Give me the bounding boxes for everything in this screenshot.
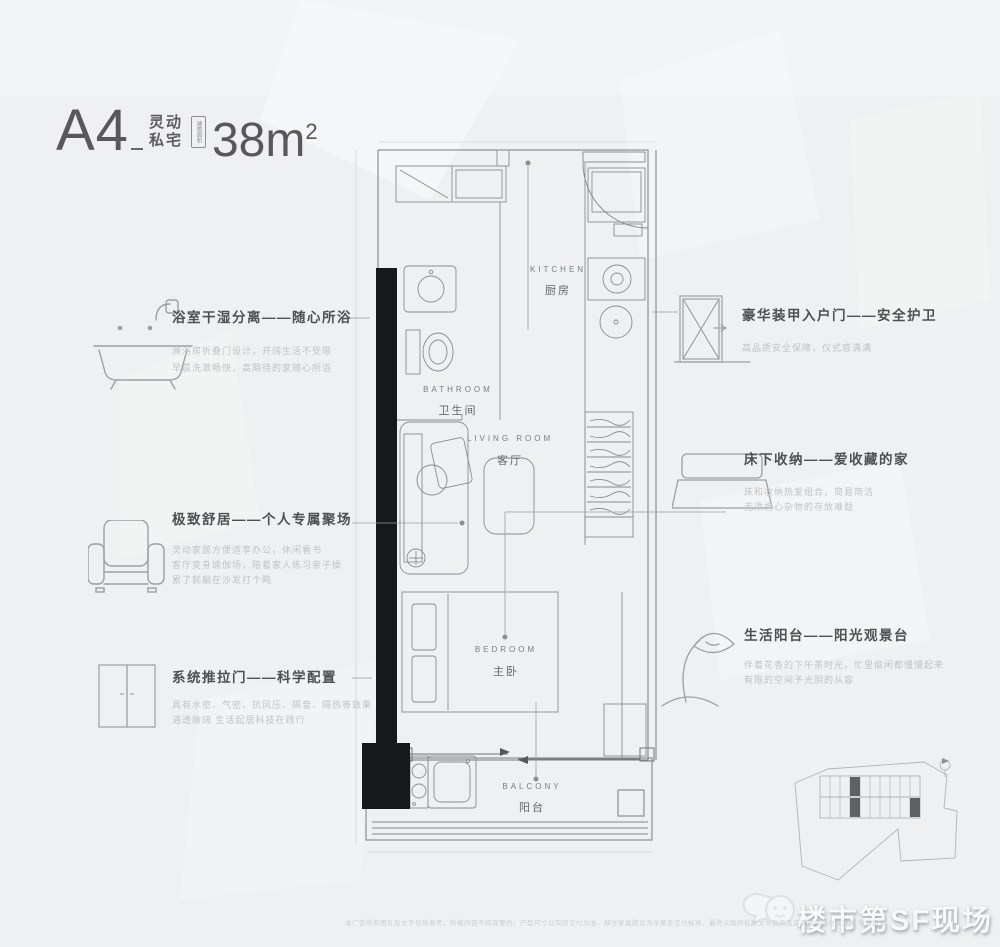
annotation-entrydoor-desc-1: 高品质安全保障，仪式感满满 [742, 341, 872, 354]
disclaimer-text: 本广告所有图片及文字仅供参考，所载内容不构成要约，户型尺寸以实际交付为准，部分家… [345, 917, 965, 927]
sliding-door-icon [98, 664, 158, 730]
tagline-line2: 私宅 [149, 132, 183, 149]
plan-title-block: A4 灵动 私宅 建筑面积 38m2 [56, 100, 318, 170]
annotation-entrydoor-title: 豪华装甲入户门——安全护卫 [742, 304, 937, 324]
balcony-label-en: BALCONY [502, 782, 561, 791]
annotation-living-desc-2: 客厅变身瑜伽场，陪着家人练习亲子操 [172, 558, 342, 571]
bathroom-label-en: BATHROOM [423, 385, 493, 394]
annotation-bathroom-desc-2: 早晨洗漱畅快，高期待的家随心所浴 [172, 361, 332, 374]
annotation-bedstorage-desc-1: 床和收纳热爱组合，简易简洁 [744, 485, 874, 498]
balcony-label-zh: 阳台 [519, 800, 545, 814]
unit-area: 38m2 [212, 102, 318, 171]
unit-tagline: 灵动 私宅 [149, 114, 183, 150]
area-superscript: 2 [305, 119, 317, 144]
tagline-line1: 灵动 [149, 114, 183, 131]
floor-lamp-icon [658, 618, 746, 712]
annotation-living-desc-3: 累了就躺在沙发打个盹 [172, 573, 272, 586]
bedroom-label-en: BEDROOM [475, 645, 537, 654]
floorplan-page: A4 灵动 私宅 建筑面积 38m2 [0, 0, 1000, 947]
area-badge: 建筑面积 [191, 116, 206, 148]
annotation-slidingdoor-title: 系统推拉门——科学配置 [172, 666, 337, 686]
entry-door-icon [674, 294, 752, 368]
unit-name: A4 [56, 100, 129, 162]
annotation-balcony-desc-2: 有限的空间予光阴的从容 [744, 673, 854, 686]
annotation-balcony-title: 生活阳台——阳光观景台 [744, 624, 909, 644]
annotation-bathroom-desc-1: 淋浴房折叠门设计，开阔生活不受限 [172, 344, 332, 357]
annotation-slidingdoor-desc-2: 通透敞阔 生活起居科技在践行 [172, 713, 306, 726]
annotation-living-title: 极致舒居——个人专属聚场 [172, 508, 352, 528]
north-arrow-icon [940, 758, 950, 777]
annotation-balcony-desc-1: 伴着花香的下午茶时光，忙里偷闲都慢慢起来 [744, 658, 944, 671]
annotation-bedstorage-title: 床下收纳——爱收藏的家 [744, 448, 909, 468]
annotation-bathroom-title: 浴室干湿分离——随心所浴 [172, 306, 352, 326]
living-room-label-zh: 客厅 [497, 453, 523, 467]
living-room-label-en: LIVING ROOM [467, 434, 553, 443]
annotation-bedstorage-desc-2: 无须担心杂物的存放难题 [744, 500, 854, 513]
title-underscore [131, 148, 143, 150]
annotation-slidingdoor-desc-1: 具有水密、气密、抗风压、隔音、隔热等效果 [172, 698, 372, 711]
kitchen-label-zh: 厨房 [545, 284, 571, 297]
bedroom-label-zh: 主卧 [493, 665, 519, 678]
kitchen-label-en: KITCHEN [530, 265, 586, 274]
chat-bubbles-icon [738, 888, 800, 938]
area-value: 38m [212, 114, 305, 167]
site-key-plan [795, 758, 957, 880]
annotation-living-desc-1: 灵动家居方便适享办公，休闲看书 [172, 543, 322, 556]
bathroom-label-zh: 卫生间 [439, 403, 478, 417]
armchair-icon [88, 520, 172, 598]
